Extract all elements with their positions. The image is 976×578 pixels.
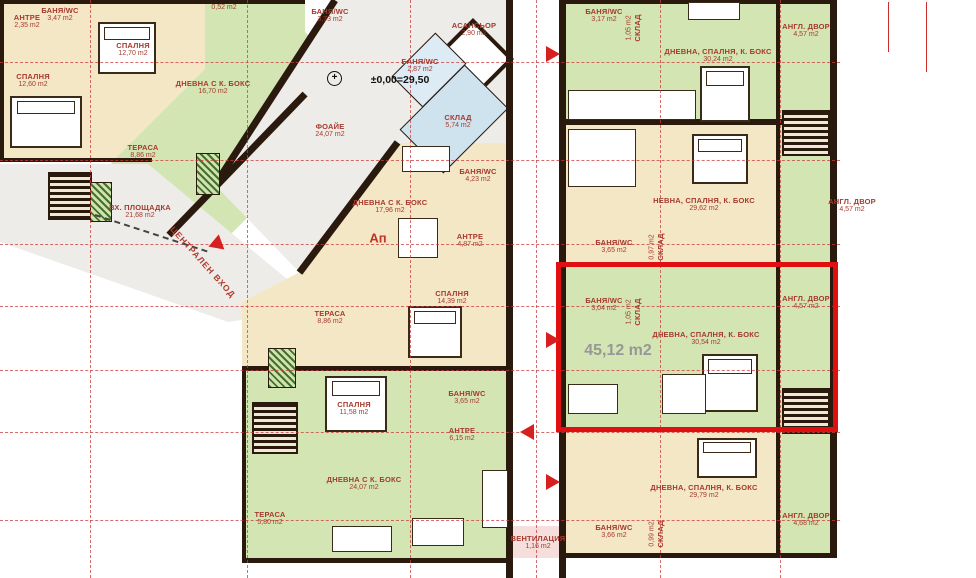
room-name: АНГЛ. ДВОР	[782, 295, 830, 303]
room-name: БАНЯ/WC	[401, 58, 438, 66]
level-mark: ±0,00=29,50	[371, 74, 430, 86]
room-name: НЕВНА, СПАЛНЯ, К. БОКС	[653, 197, 755, 205]
room-label: ДНЕВНА С К. БОКС 24,07 m2	[327, 476, 402, 492]
room-name: ТЕРАСА	[314, 310, 345, 318]
wall	[0, 0, 4, 162]
courtyard-grille	[782, 110, 830, 156]
room-area: 3,17 m2	[591, 16, 616, 24]
courtyard-grille	[252, 402, 298, 454]
bed	[408, 306, 462, 358]
room-name: СКЛАД	[657, 233, 665, 260]
room-area: 0,52 m2	[211, 4, 236, 12]
room-label: БАНЯ/WC 3,04 m2	[585, 297, 622, 313]
room-label: БАНЯ/WC 3,47 m2	[41, 7, 78, 23]
room-label: ТЕРАСА 8,86 m2	[127, 144, 158, 160]
room-label: БАНЯ/WC 3,65 m2	[595, 239, 632, 255]
room-label: ДНЕВНА С К. БОКС 17,96 m2	[353, 199, 428, 215]
axis-line	[90, 0, 91, 578]
room-label: ДНЕВНА, СПАЛНЯ, К. БОКС 30,24 m2	[664, 48, 771, 64]
room-area: 16,70 m2	[198, 88, 227, 96]
room-name: БАНЯ/WC	[595, 524, 632, 532]
room-name: ТЕРАСА	[127, 144, 158, 152]
room-name: БАНЯ/WC	[595, 239, 632, 247]
room-area: 2,87 m2	[407, 66, 432, 74]
direction-arrow-icon	[546, 332, 560, 348]
direction-arrow-icon	[520, 424, 534, 440]
room-area: 29,79 m2	[689, 492, 718, 500]
planter	[268, 348, 296, 388]
axis-line	[0, 432, 840, 433]
room-area: 6,15 m2	[449, 435, 474, 443]
room-name: БАНЯ/WC	[311, 8, 348, 16]
room-label: 0,52 m2	[211, 4, 236, 12]
room-area: 1,16 m2	[525, 543, 550, 551]
room-label: СКЛАД 5,74 m2	[444, 114, 471, 130]
kitchen-counter	[568, 129, 636, 187]
room-area: 4,57 m2	[793, 31, 818, 39]
room-label: БАНЯ/WC 3,66 m2	[595, 524, 632, 540]
room-label: АНГЛ. ДВОР 4,57 m2	[782, 23, 830, 39]
room-label: ВХ. ПЛОЩАДКА 21,68 m2	[109, 204, 171, 220]
table	[412, 518, 464, 546]
room-label: СКЛАД 1,05 m2	[625, 14, 642, 41]
room-area: 12,70 m2	[118, 50, 147, 58]
floor-plan: + ±0,00=29,50 45,12 m2 Ап ЦЕНТРАЛЕН ВХОД…	[0, 0, 976, 578]
room-label: ТЕРАСА 8,86 m2	[314, 310, 345, 326]
room-area: 4,23 m2	[465, 176, 490, 184]
room-label: БАНЯ/WC 4,23 m2	[459, 168, 496, 184]
room-area: 24,07 m2	[315, 131, 344, 139]
room-label: СКЛАД 0,97 m2	[648, 233, 665, 260]
room-area: 2,90 m2	[461, 30, 486, 38]
room-label: СПАЛНЯ 12,70 m2	[116, 42, 150, 58]
room-area: 4,87 m2	[457, 241, 482, 249]
room-name: СКЛАД	[444, 114, 471, 122]
room-label: ДНЕВНА, СПАЛНЯ, К. БОКС 29,79 m2	[650, 484, 757, 500]
bed	[700, 66, 750, 122]
room-area: 4,57 m2	[839, 206, 864, 214]
room-area: 12,60 m2	[18, 81, 47, 89]
table	[398, 218, 438, 258]
room-area: 1,05 m2	[625, 299, 633, 324]
room-label: АНТРЕ 2,35 m2	[14, 14, 40, 30]
room-label: АНГЛ. ДВОР 4,68 m2	[782, 512, 830, 528]
room-label: ТЕРАСА 5,80 m2	[254, 511, 285, 527]
room-area: 3,66 m2	[601, 532, 626, 540]
wall	[242, 366, 246, 562]
room-area: 2,35 m2	[14, 22, 39, 30]
room-area: 11,58 m2	[340, 409, 369, 417]
room-label: АНГЛ. ДВОР 4,57 m2	[782, 295, 830, 311]
room-label: АНТРЕ 4,87 m2	[457, 233, 483, 249]
room-name: БАНЯ/WC	[459, 168, 496, 176]
room-area: 3,47 m2	[47, 15, 72, 23]
room-name: БАНЯ/WC	[585, 297, 622, 305]
room-name: ДНЕВНА, СПАЛНЯ, К. БОКС	[664, 48, 771, 56]
axis-line	[410, 0, 411, 578]
room-name: АСАНСЬОР	[452, 22, 496, 30]
axis-line	[0, 160, 840, 161]
room-name: АНГЛ. ДВОР	[782, 512, 830, 520]
direction-arrow-icon	[546, 474, 560, 490]
wall	[0, 0, 305, 4]
bed	[10, 96, 82, 148]
room-area: 3,65 m2	[601, 247, 626, 255]
room-name: СКЛАД	[634, 14, 642, 41]
room-area: 0,99 m2	[648, 521, 656, 546]
bed	[692, 134, 748, 184]
room-name: АНТРЕ	[449, 427, 475, 435]
room-name: ДНЕВНА С К. БОКС	[176, 80, 251, 88]
room-area: 8,86 m2	[317, 318, 342, 326]
room-area: 30,24 m2	[703, 56, 732, 64]
room-label: БАНЯ/WC 3,17 m2	[585, 8, 622, 24]
level-mark-icon: +	[327, 71, 342, 86]
room-label: ДНЕВНА С К. БОКС 16,70 m2	[176, 80, 251, 96]
apartment-marker: Ап	[369, 231, 386, 246]
room-name: АНТРЕ	[14, 14, 40, 22]
room-area: 3,65 m2	[454, 398, 479, 406]
wall	[566, 553, 832, 558]
axis-line	[0, 244, 840, 245]
room-name: ВХ. ПЛОЩАДКА	[109, 204, 171, 212]
axis-line	[0, 520, 840, 521]
sofa	[688, 2, 740, 20]
room-area: 1,05 m2	[625, 15, 633, 40]
dimension-line	[926, 2, 927, 72]
room-label: ВЕНТИЛАЦИЯ 1,16 m2	[511, 535, 566, 551]
room-label: СПАЛНЯ 12,60 m2	[16, 73, 50, 89]
room-label: ФОАЙЕ 24,07 m2	[315, 123, 344, 139]
kitchen-counter	[568, 90, 696, 120]
sofa	[332, 526, 392, 552]
room-label: СПАЛНЯ 11,58 m2	[337, 401, 371, 417]
room-label: СКЛАД 0,99 m2	[648, 520, 665, 547]
room-name: БАНЯ/WC	[41, 7, 78, 15]
room-label: АНТРЕ 6,15 m2	[449, 427, 475, 443]
room-area: 17,96 m2	[375, 207, 404, 215]
room-area: 29,62 m2	[689, 205, 718, 213]
room-area: 3,04 m2	[591, 305, 616, 313]
room-name: СПАЛНЯ	[337, 401, 371, 409]
room-name: АНТРЕ	[457, 233, 483, 241]
room-name: БАНЯ/WC	[585, 8, 622, 16]
room-name: СКЛАД	[657, 520, 665, 547]
room-name: ВЕНТИЛАЦИЯ	[511, 535, 566, 543]
room-area: 14,39 m2	[437, 298, 466, 306]
room-name: СПАЛНЯ	[435, 290, 469, 298]
room-area: 3,73 m2	[317, 16, 342, 24]
room-label: БАНЯ/WC 3,73 m2	[311, 8, 348, 24]
room-area: 0,97 m2	[648, 234, 656, 259]
wall	[242, 558, 508, 563]
room-label: НЕВНА, СПАЛНЯ, К. БОКС 29,62 m2	[653, 197, 755, 213]
room-label: БАНЯ/WC 3,65 m2	[448, 390, 485, 406]
room-name: БАНЯ/WC	[448, 390, 485, 398]
room-area: 5,74 m2	[445, 122, 470, 130]
room-label: АНГЛ. ДВОР 4,57 m2	[828, 198, 876, 214]
dimension-line	[888, 2, 889, 52]
room-label: БАНЯ/WC 2,87 m2	[401, 58, 438, 74]
room-label: СКЛАД 1,05 m2	[625, 298, 642, 325]
highlighted-apartment-area-label: 45,12 m2	[584, 342, 652, 360]
room-name: ФОАЙЕ	[316, 123, 345, 131]
room-name: СПАЛНЯ	[116, 42, 150, 50]
room-name: ДНЕВНА С К. БОКС	[353, 199, 428, 207]
room-name: СКЛАД	[634, 298, 642, 325]
room-name: ДНЕВНА С К. БОКС	[327, 476, 402, 484]
room-name: ДНЕВНА, СПАЛНЯ, К. БОКС	[652, 331, 759, 339]
room-label: СПАЛНЯ 14,39 m2	[435, 290, 469, 306]
room-name: ТЕРАСА	[254, 511, 285, 519]
room-label: ДНЕВНА, СПАЛНЯ, К. БОКС 30,54 m2	[652, 331, 759, 347]
room-area: 30,54 m2	[691, 339, 720, 347]
room-area: 4,68 m2	[793, 520, 818, 528]
room-name: АНГЛ. ДВОР	[828, 198, 876, 206]
room-name: СПАЛНЯ	[16, 73, 50, 81]
room-area: 4,57 m2	[793, 303, 818, 311]
room-name: ДНЕВНА, СПАЛНЯ, К. БОКС	[650, 484, 757, 492]
direction-arrow-icon	[546, 46, 560, 62]
room-area: 21,68 m2	[125, 212, 154, 220]
room-label: АСАНСЬОР 2,90 m2	[452, 22, 496, 38]
bed	[697, 438, 757, 478]
room-area: 24,07 m2	[349, 484, 378, 492]
room-name: АНГЛ. ДВОР	[782, 23, 830, 31]
stair-grille	[48, 172, 92, 220]
room-area: 5,80 m2	[257, 519, 282, 527]
axis-line	[536, 0, 537, 578]
room-area: 8,86 m2	[130, 152, 155, 160]
